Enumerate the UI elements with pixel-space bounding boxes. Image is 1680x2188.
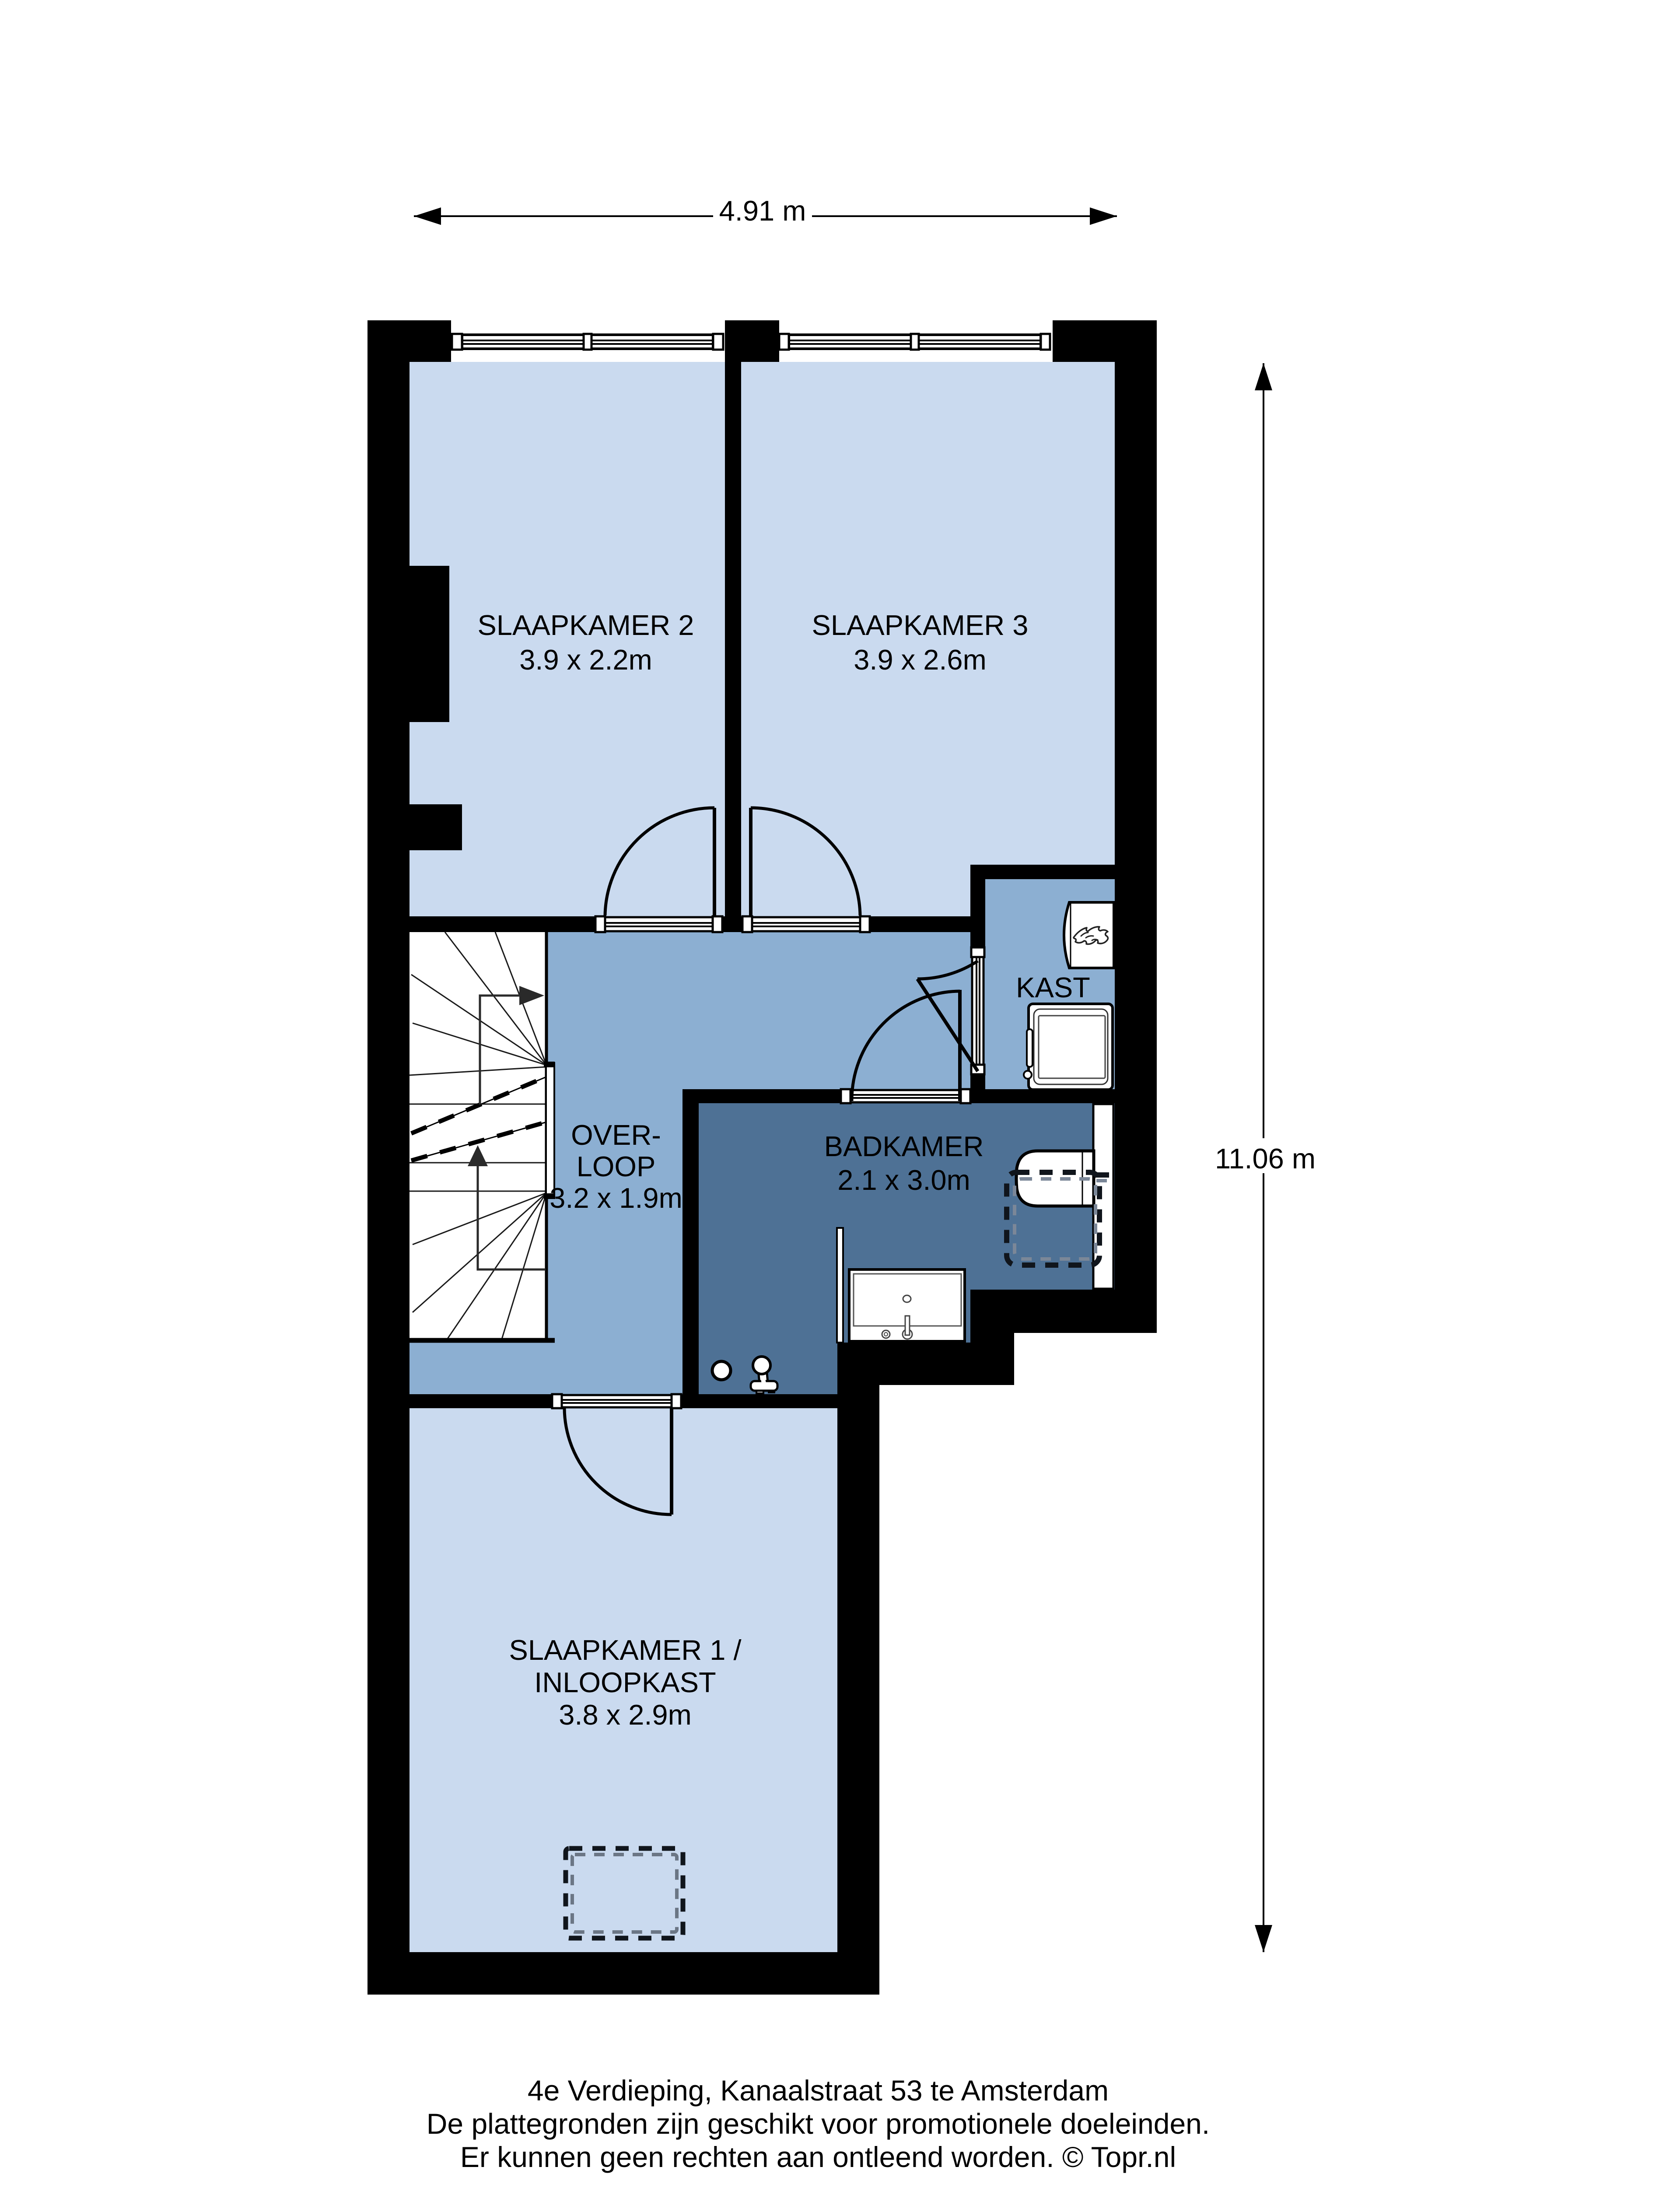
svg-text:SLAAPKAMER 3: SLAAPKAMER 3	[812, 609, 1029, 641]
svg-text:4e Verdieping, Kanaalstraat 53: 4e Verdieping, Kanaalstraat 53 te Amster…	[528, 2074, 1109, 2107]
svg-text:OVER-: OVER-	[571, 1119, 661, 1151]
svg-text:De plattegronden zijn geschikt: De plattegronden zijn geschikt voor prom…	[427, 2107, 1210, 2140]
svg-text:SLAAPKAMER 1 /: SLAAPKAMER 1 /	[509, 1634, 742, 1666]
svg-text:3.2 x 1.9m: 3.2 x 1.9m	[549, 1182, 682, 1214]
svg-text:SLAAPKAMER 2: SLAAPKAMER 2	[478, 609, 694, 641]
svg-text:3.8 x 2.9m: 3.8 x 2.9m	[559, 1699, 691, 1731]
svg-text:11.06 m: 11.06 m	[1215, 1143, 1316, 1175]
svg-text:2.1 x 3.0m: 2.1 x 3.0m	[837, 1164, 970, 1196]
svg-text:LOOP: LOOP	[577, 1150, 656, 1182]
svg-text:Er kunnen geen rechten aan ont: Er kunnen geen rechten aan ontleend word…	[460, 2141, 1176, 2173]
svg-text:3.9 x 2.6m: 3.9 x 2.6m	[854, 644, 986, 676]
svg-text:KAST: KAST	[1016, 971, 1090, 1003]
svg-text:BADKAMER: BADKAMER	[824, 1130, 984, 1162]
svg-text:4.91 m: 4.91 m	[719, 195, 806, 227]
svg-text:3.9 x 2.2m: 3.9 x 2.2m	[519, 644, 652, 676]
svg-text:INLOOPKAST: INLOOPKAST	[534, 1666, 716, 1698]
